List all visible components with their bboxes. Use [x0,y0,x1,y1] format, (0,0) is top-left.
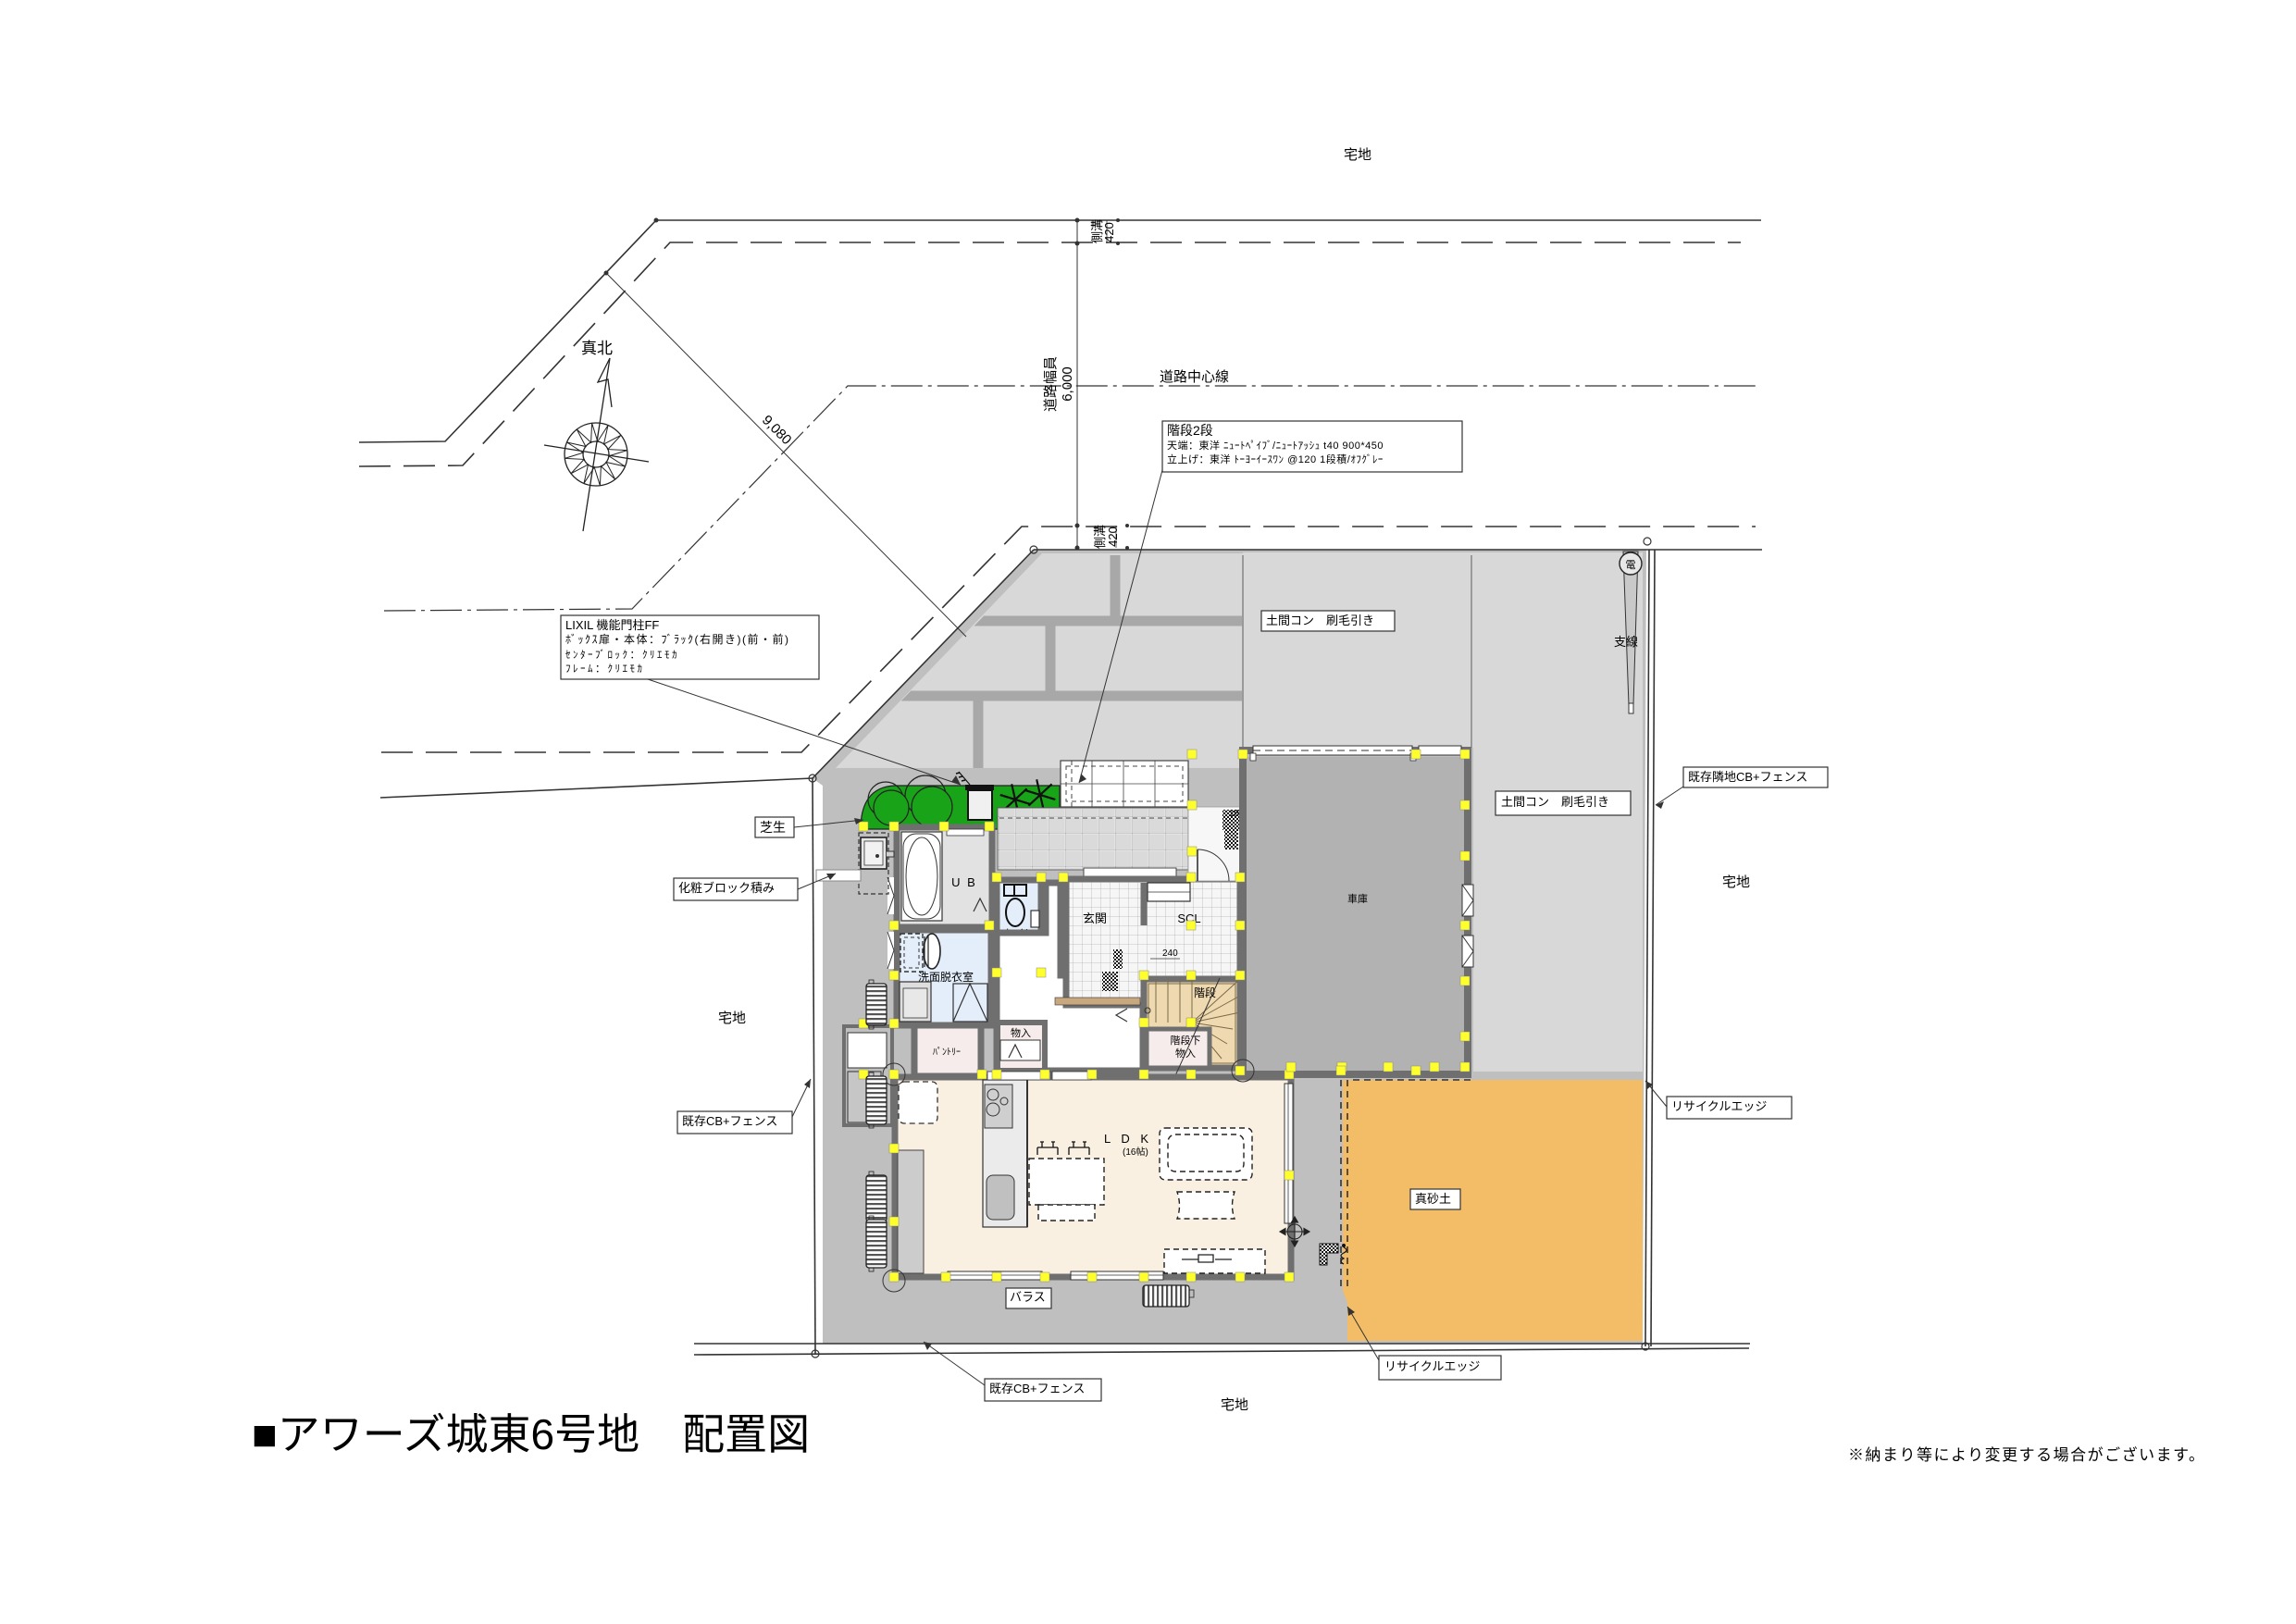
svg-text:天端：東洋 ﾆｭｰﾄﾍﾟｲﾌﾞ/ﾆｭｰﾄｱｯｼｭ t40: 天端：東洋 ﾆｭｰﾄﾍﾟｲﾌﾞ/ﾆｭｰﾄｱｯｼｭ t40 900*450 [1167,439,1384,452]
svg-text:U B: U B [951,875,977,889]
svg-text:道路幅員: 道路幅員 [1043,356,1059,412]
svg-text:L D K: L D K [1104,1132,1152,1146]
svg-text:化粧ブロック積み: 化粧ブロック積み [678,881,775,895]
svg-text:宅地: 宅地 [1722,874,1750,890]
svg-text:既存隣地CB+フェンス: 既存隣地CB+フェンス [1688,770,1807,784]
svg-text:(16帖): (16帖) [1123,1146,1148,1158]
svg-text:立上げ：東洋 ﾄｰﾖｰｲｰｽﾜﾝ @120 1段積/ｵﾌｸﾞ: 立上げ：東洋 ﾄｰﾖｰｲｰｽﾜﾝ @120 1段積/ｵﾌｸﾞﾚｰ [1167,452,1384,465]
svg-text:※納まり等により変更する場合がございます。: ※納まり等により変更する場合がございます。 [1848,1445,2205,1464]
svg-text:240: 240 [1162,948,1178,959]
svg-text:LIXIL 機能門柱FF: LIXIL 機能門柱FF [565,618,659,632]
svg-text:車庫: 車庫 [1347,892,1368,905]
svg-text:6,000: 6,000 [1060,366,1075,402]
svg-text:宅地: 宅地 [1344,147,1371,163]
svg-text:ﾌﾚｰﾑ：ｸﾘｴﾓｶ: ﾌﾚｰﾑ：ｸﾘｴﾓｶ [565,663,645,675]
svg-text:真北: 真北 [581,340,613,357]
svg-text:既存CB+フェンス: 既存CB+フェンス [989,1382,1085,1395]
svg-text:真砂土: 真砂土 [1415,1192,1451,1206]
svg-text:420: 420 [1102,222,1116,242]
svg-text:リサイクルエッジ: リサイクルエッジ [1384,1359,1480,1373]
svg-text:支線: 支線 [1614,635,1638,649]
svg-text:芝生: 芝生 [760,820,786,835]
svg-text:土間コン 刷毛引き: 土間コン 刷毛引き [1266,614,1374,627]
svg-text:階段2段: 階段2段 [1167,423,1213,438]
svg-text:階段下: 階段下 [1171,1034,1201,1047]
svg-text:宅地: 宅地 [718,1010,746,1026]
svg-text:物入: 物入 [1011,1026,1031,1039]
svg-text:側溝: 側溝 [1093,525,1107,549]
svg-text:バラス: バラス [1010,1290,1046,1304]
svg-text:ﾎﾞｯｸｽ扉・本体：ﾌﾞﾗｯｸ(右開き)(前・前): ﾎﾞｯｸｽ扉・本体：ﾌﾞﾗｯｸ(右開き)(前・前) [565,632,790,646]
svg-text:電: 電 [1626,559,1636,571]
svg-text:既存CB+フェンス: 既存CB+フェンス [682,1114,777,1128]
svg-text:リサイクルエッジ: リサイクルエッジ [1671,1099,1767,1113]
svg-text:道路中心線: 道路中心線 [1160,369,1229,385]
svg-text:420: 420 [1106,527,1120,547]
svg-text:玄関: 玄関 [1083,911,1107,925]
svg-text:■アワーズ城東6号地 配置図: ■アワーズ城東6号地 配置図 [252,1410,810,1458]
svg-text:宅地: 宅地 [1221,1397,1248,1413]
svg-text:土間コン 刷毛引き: 土間コン 刷毛引き [1501,795,1609,809]
svg-text:ｾﾝﾀｰﾌﾞﾛｯｸ：ｸﾘｴﾓｶ: ｾﾝﾀｰﾌﾞﾛｯｸ：ｸﾘｴﾓｶ [565,649,679,661]
svg-text:ﾊﾟﾝﾄﾘｰ: ﾊﾟﾝﾄﾘｰ [933,1047,961,1058]
